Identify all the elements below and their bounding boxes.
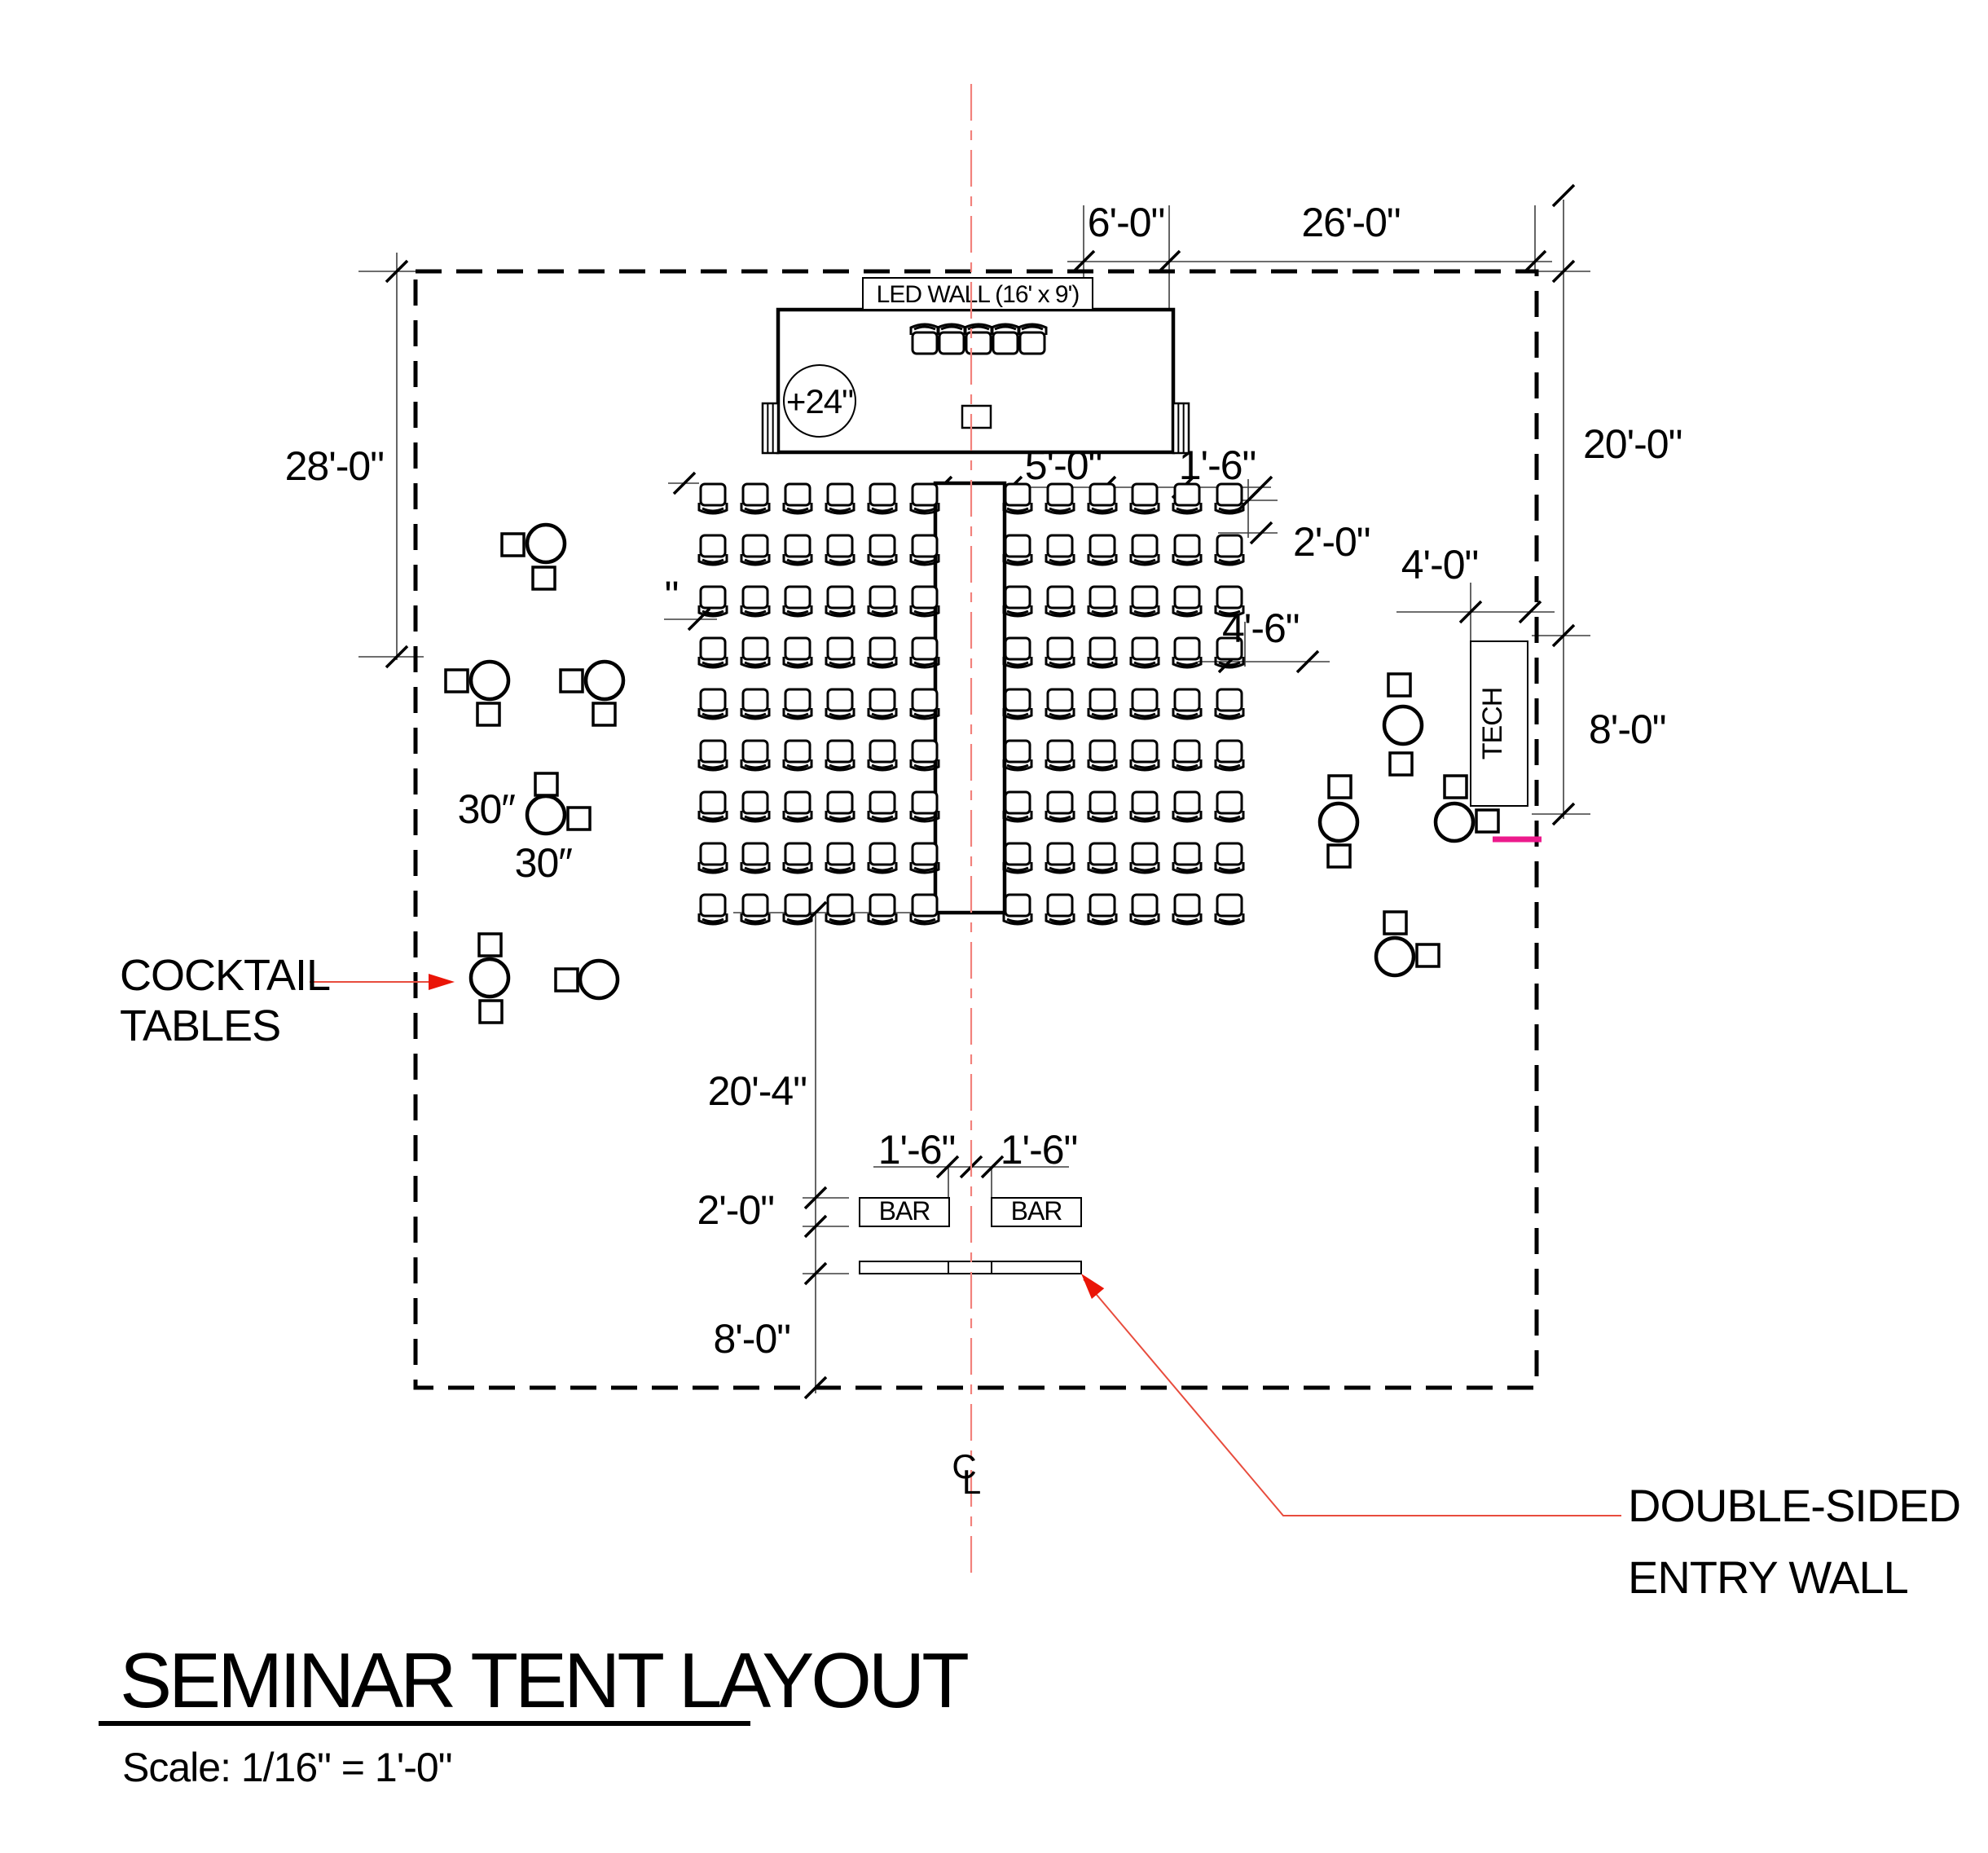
audience-chair: [699, 843, 727, 873]
audience-chair: [741, 792, 769, 821]
dimension-text: 26'-0": [1301, 200, 1400, 245]
cocktail-stool: [593, 703, 615, 725]
cocktail-table: [471, 934, 508, 1023]
audience-chair: [699, 638, 727, 667]
dimension-text: 20'-0": [1583, 421, 1682, 467]
cocktail-stool: [480, 1001, 502, 1023]
centerline-symbol-l: L: [962, 1463, 980, 1501]
audience-chair: [869, 792, 896, 821]
audience-chair: [869, 535, 896, 565]
dimension-text: 20'-4": [708, 1068, 807, 1114]
cocktail-stool: [446, 670, 468, 692]
audience-chair: [699, 535, 727, 565]
audience-chair: [1089, 792, 1116, 821]
dimension-text: 30″: [515, 840, 573, 886]
audience-chair: [826, 638, 854, 667]
stage: [778, 310, 1173, 452]
cocktail-stool: [477, 703, 499, 725]
dimension-text: 30″: [458, 786, 516, 832]
leader-arrowhead: [429, 974, 455, 990]
led-wall-label: LED WALL (16' x 9'): [877, 281, 1080, 308]
audience-chair: [1089, 689, 1116, 719]
audience-chair: [1046, 895, 1074, 924]
cocktail-stool: [1390, 753, 1412, 775]
audience-chair: [1046, 792, 1074, 821]
dimension-text: 4'-0": [1401, 542, 1479, 588]
audience-chair: [1173, 792, 1201, 821]
audience-chair: [741, 741, 769, 770]
audience-chair: [1131, 638, 1159, 667]
audience-chair: [699, 689, 727, 719]
cocktail-table: [527, 773, 590, 834]
dimension-text: 2'-0": [1293, 519, 1370, 565]
audience-chair: [869, 895, 896, 924]
audience-chair: [741, 484, 769, 513]
cocktail-stool: [1417, 944, 1439, 966]
audience-chair: [1089, 741, 1116, 770]
audience-chair: [1046, 741, 1074, 770]
leader-line: [1084, 1279, 1621, 1516]
cocktail-stool: [1328, 845, 1350, 867]
leader-arrowhead: [1081, 1274, 1104, 1299]
audience-chair: [1131, 895, 1159, 924]
audience-chair: [911, 587, 939, 616]
dimension-text: 1'-6": [1001, 1127, 1078, 1173]
cocktail-stool: [502, 534, 524, 556]
audience-chair: [1046, 689, 1074, 719]
audience-chair: [1216, 792, 1243, 821]
audience-chair: [1004, 638, 1031, 667]
runway: [935, 483, 1005, 913]
audience-chair: [784, 638, 811, 667]
audience-chair: [1004, 895, 1031, 924]
audience-chair: [699, 895, 727, 924]
audience-chair: [1046, 484, 1074, 513]
audience-chair: [1131, 792, 1159, 821]
audience-chair: [1089, 484, 1116, 513]
cocktail-tables-label-line1: COCKTAIL: [120, 950, 330, 1001]
audience-chair: [911, 638, 939, 667]
audience-chair: [911, 689, 939, 719]
stage-height-note: +24": [786, 382, 853, 420]
dimension-text: ": [665, 573, 679, 618]
audience-chair: [826, 587, 854, 616]
cocktail-stool: [1476, 810, 1498, 832]
audience-chair: [784, 689, 811, 719]
audience-chair: [869, 689, 896, 719]
audience-chair: [1173, 587, 1201, 616]
audience-chair: [1173, 689, 1201, 719]
audience-chair: [869, 587, 896, 616]
audience-chair: [1131, 689, 1159, 719]
audience-chair: [741, 843, 769, 873]
cocktail-stool: [1384, 912, 1406, 934]
audience-chair: [1046, 843, 1074, 873]
audience-chair: [741, 587, 769, 616]
audience-chair: [699, 741, 727, 770]
entry-wall-label-line1: DOUBLE-SIDED: [1628, 1470, 1960, 1542]
audience-chair: [869, 484, 896, 513]
audience-chair: [784, 741, 811, 770]
audience-chair: [741, 535, 769, 565]
audience-chair: [1004, 843, 1031, 873]
cocktail-stool: [556, 969, 578, 991]
audience-chair: [869, 741, 896, 770]
audience-chair: [1216, 843, 1243, 873]
audience-chair: [1173, 484, 1201, 513]
cocktail-tables-label-line2: TABLES: [120, 1001, 330, 1051]
audience-chair: [1131, 741, 1159, 770]
entry-wall: [860, 1261, 1081, 1274]
audience-chair: [1216, 741, 1243, 770]
audience-chair: [1131, 484, 1159, 513]
audience-chair: [1004, 792, 1031, 821]
audience-chair: [826, 843, 854, 873]
podium: [962, 406, 991, 428]
audience-chair: [1004, 535, 1031, 565]
dimension-text: 6'-0": [1088, 200, 1165, 245]
audience-chair: [784, 895, 811, 924]
audience-chair: [1173, 638, 1201, 667]
entry-wall-label: DOUBLE-SIDED ENTRY WALL: [1628, 1470, 1960, 1613]
cocktail-table: [561, 662, 623, 725]
audience-chair: [911, 843, 939, 873]
audience-chair: [1173, 843, 1201, 873]
audience-chair: [869, 638, 896, 667]
audience-chair: [784, 843, 811, 873]
audience-chair: [826, 895, 854, 924]
dimension-text: 4'-6": [1222, 605, 1300, 651]
audience-chair: [1131, 587, 1159, 616]
audience-chair: [784, 792, 811, 821]
cocktail-stool: [535, 773, 557, 795]
audience-chair: [1089, 535, 1116, 565]
audience-chair: [1131, 843, 1159, 873]
audience-chair: [741, 895, 769, 924]
audience-chair: [911, 484, 939, 513]
cocktail-tables-label: COCKTAIL TABLES: [120, 950, 330, 1051]
entry-wall-label-line2: ENTRY WALL: [1628, 1542, 1960, 1613]
audience-chair: [784, 535, 811, 565]
stage-step: [763, 403, 778, 453]
audience-chair: [784, 587, 811, 616]
cocktail-stool: [1445, 776, 1467, 798]
cocktail-stool: [533, 567, 555, 589]
dimension-text: 8'-0": [1589, 706, 1666, 752]
audience-chair: [826, 792, 854, 821]
cocktail-table: [446, 662, 508, 725]
cocktail-stool: [1388, 674, 1410, 696]
audience-chair: [826, 484, 854, 513]
title-underline: [99, 1721, 750, 1726]
dimension-text: 2'-0": [697, 1187, 774, 1233]
audience-chair: [911, 895, 939, 924]
seminar-tent-floor-plan: LED WALL (16' x 9')+24"TECHBARBAR6'-0"26…: [0, 0, 1988, 1853]
audience-chair: [1216, 689, 1243, 719]
audience-chair: [826, 535, 854, 565]
audience-chair: [1089, 587, 1116, 616]
audience-chair: [1089, 895, 1116, 924]
audience-chair: [699, 484, 727, 513]
scale-note: Scale: 1/16" = 1'-0": [122, 1744, 451, 1791]
audience-chair: [826, 741, 854, 770]
audience-chair: [1173, 895, 1201, 924]
audience-chair: [869, 843, 896, 873]
audience-chair: [826, 689, 854, 719]
dimension-text: 1'-6": [1179, 442, 1256, 488]
audience-chair: [911, 741, 939, 770]
audience-chair: [1046, 638, 1074, 667]
audience-chair: [1004, 587, 1031, 616]
dimension-text: 28'-0": [285, 443, 384, 489]
bar-label: BAR: [1011, 1196, 1062, 1226]
audience-chair: [1216, 895, 1243, 924]
cocktail-stool: [561, 670, 583, 692]
audience-chair: [1004, 689, 1031, 719]
bar-label: BAR: [879, 1196, 930, 1226]
dimension-text: 8'-0": [713, 1316, 790, 1362]
cocktail-table: [1320, 776, 1357, 867]
audience-chair: [741, 638, 769, 667]
audience-chair: [1089, 843, 1116, 873]
cocktail-stool: [479, 934, 501, 956]
dimension-text: 5'-0": [1025, 442, 1102, 488]
audience-chair: [1046, 587, 1074, 616]
audience-chair: [1004, 484, 1031, 513]
audience-chair: [699, 792, 727, 821]
audience-chair: [699, 587, 727, 616]
audience-chair: [1131, 535, 1159, 565]
audience-chair: [1216, 484, 1243, 513]
dimension-text: 1'-6": [878, 1127, 956, 1173]
audience-chair: [911, 535, 939, 565]
cocktail-table: [1384, 674, 1422, 775]
tech-booth-label: TECH: [1477, 688, 1508, 760]
audience-chair: [1089, 638, 1116, 667]
audience-chair: [1216, 535, 1243, 565]
audience-chair: [1004, 741, 1031, 770]
audience-chair: [1046, 535, 1074, 565]
cocktail-stool: [568, 808, 590, 830]
audience-chair: [784, 484, 811, 513]
cocktail-table: [1376, 912, 1439, 975]
audience-chair: [911, 792, 939, 821]
cocktail-stool: [1329, 776, 1351, 798]
cocktail-table: [556, 961, 618, 998]
audience-chair: [1173, 741, 1201, 770]
audience-chair: [1173, 535, 1201, 565]
page-title: SEMINAR TENT LAYOUT: [120, 1636, 966, 1726]
cocktail-table: [502, 525, 565, 589]
audience-chair: [741, 689, 769, 719]
